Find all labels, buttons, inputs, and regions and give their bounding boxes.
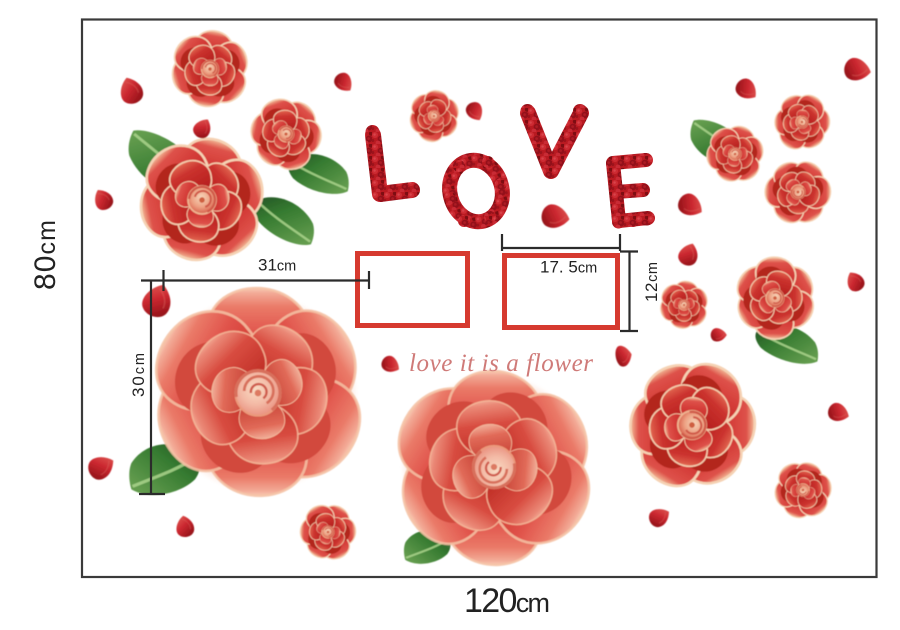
svg-text:love it is a flower: love it is a flower bbox=[409, 350, 593, 377]
svg-text:31cm: 31cm bbox=[258, 256, 296, 275]
svg-text:17. 5cm: 17. 5cm bbox=[540, 258, 597, 277]
svg-text:30cm: 30cm bbox=[129, 353, 148, 397]
svg-text:120cm: 120cm bbox=[464, 582, 550, 620]
svg-text:12cm: 12cm bbox=[642, 262, 661, 302]
svg-text:80cm: 80cm bbox=[29, 220, 62, 290]
